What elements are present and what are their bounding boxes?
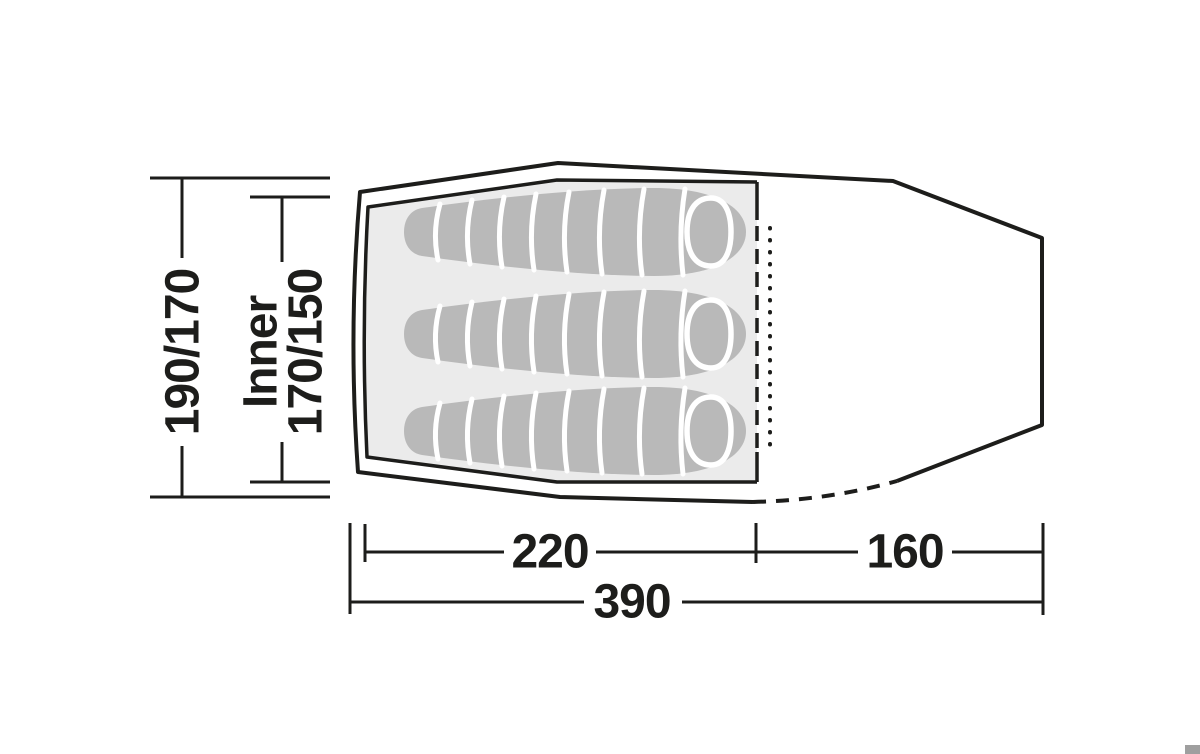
inner-width-label-value: 170/150 [280, 269, 333, 436]
vertical-dimension-inner: Inner 170/150 [235, 197, 333, 482]
vestibule-door-dashed [753, 481, 897, 502]
horizontal-dimension-porch-length: 160 [756, 523, 1043, 579]
floorplan-svg: 190/170 Inner 170/150 [0, 0, 1200, 754]
horizontal-dimension-inner-length: 220 [365, 524, 756, 579]
porch-length-label: 160 [866, 526, 943, 579]
inner-length-label: 220 [511, 526, 588, 579]
outer-width-label: 190/170 [157, 269, 210, 436]
tent-floorplan-diagram: 190/170 Inner 170/150 [0, 0, 1200, 754]
page-corner-mark [1185, 745, 1200, 754]
sleeping-bags [404, 188, 746, 475]
total-length-label: 390 [593, 576, 670, 629]
